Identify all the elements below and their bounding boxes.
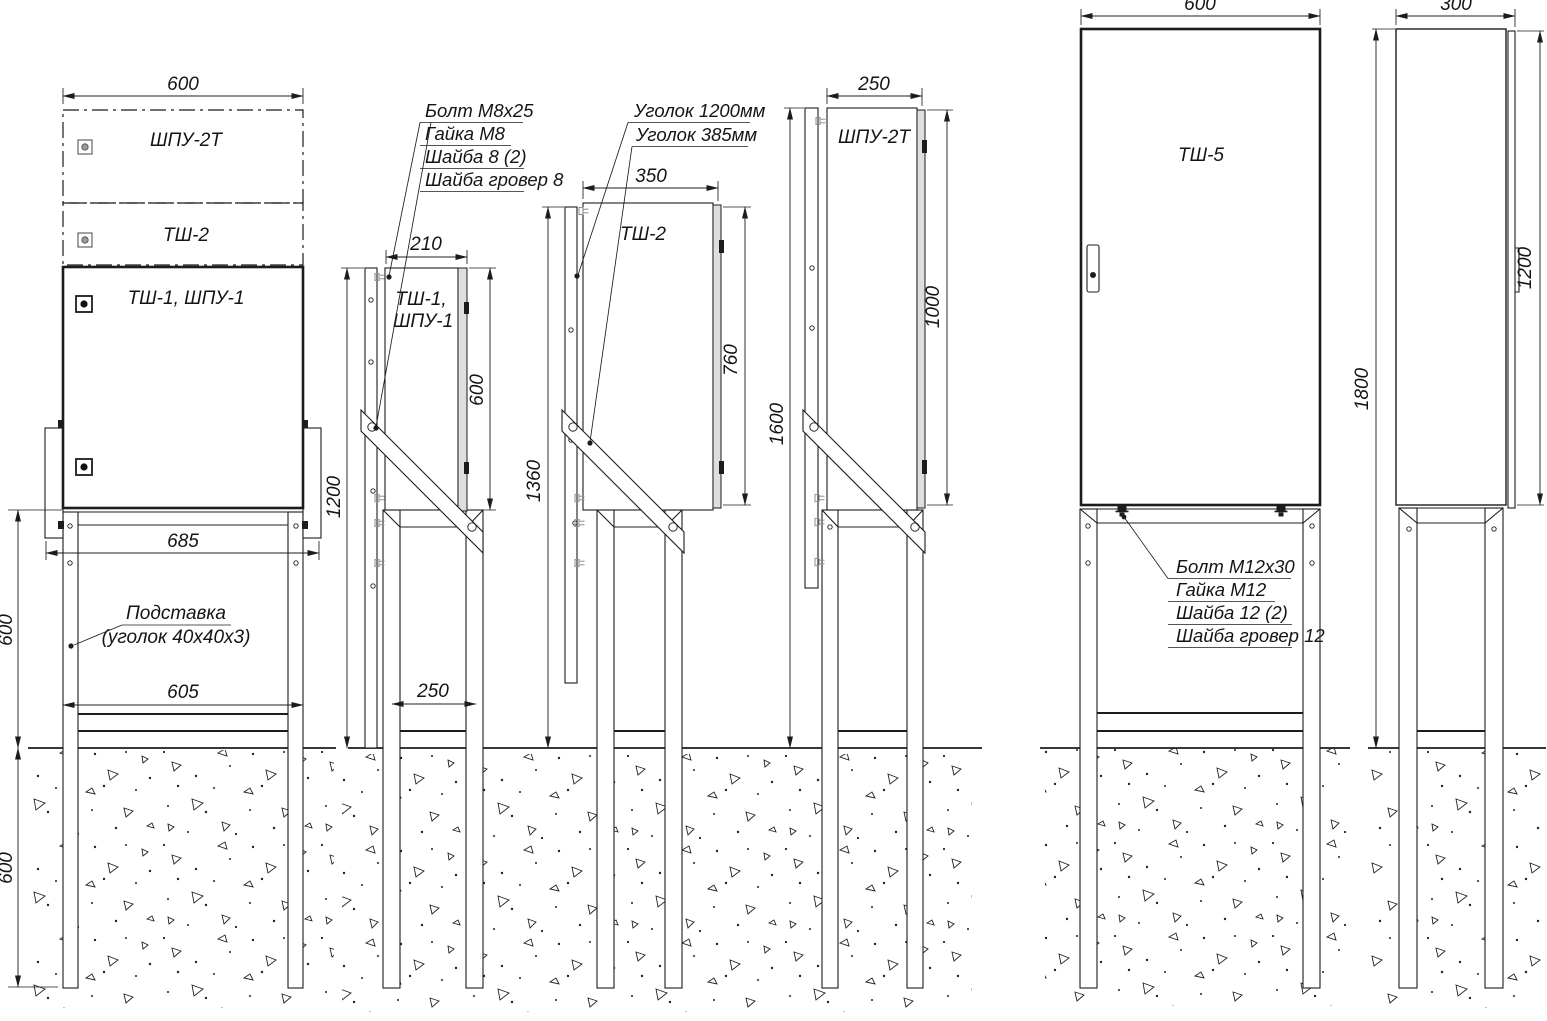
dim-bracket-685: 685: [46, 531, 319, 560]
svg-text:350: 350: [635, 166, 667, 187]
stand-leg: [665, 510, 682, 988]
stand-leg: [383, 510, 400, 988]
cabinet-label: ШПУ-2Т: [838, 127, 911, 148]
svg-text:Шайба гровер 8: Шайба гровер 8: [425, 169, 564, 190]
cabinet-tsh5: [1081, 29, 1320, 505]
dim-width-600: 600: [63, 74, 303, 104]
door-handle: [1087, 245, 1099, 292]
svg-text:250: 250: [857, 74, 890, 95]
dim-legs-250: 250: [392, 681, 476, 704]
cabinet-side: [1396, 29, 1506, 505]
svg-text:Шайба гровер 12: Шайба гровер 12: [1176, 625, 1325, 646]
stand-leg: [63, 512, 78, 988]
svg-text:1800: 1800: [1352, 367, 1373, 410]
svg-text:1000: 1000: [923, 285, 944, 328]
cabinet-shpu2t-outline: [63, 110, 303, 203]
dim-total-1600: 1600: [767, 108, 804, 748]
cabinet-label: ТШ-1, ШПУ-1: [128, 288, 245, 309]
cabinet-label: ШПУ-2Т: [150, 130, 223, 151]
svg-text:605: 605: [167, 682, 199, 703]
stand-leg: [1080, 509, 1097, 988]
lock-icon: [78, 140, 92, 154]
cabinet-label: ШПУ-1: [393, 311, 453, 332]
dim-cabinet-760: 760: [721, 207, 751, 505]
dim-depth-210: 210: [386, 234, 467, 264]
stand-leg: [597, 510, 614, 988]
svg-text:Уголок 1200мм: Уголок 1200мм: [633, 100, 766, 121]
svg-text:1200: 1200: [324, 475, 345, 518]
svg-text:600: 600: [467, 374, 488, 406]
svg-text:300: 300: [1440, 0, 1472, 15]
cabinet-label: ТШ-1,: [395, 289, 446, 310]
stand-leg: [907, 510, 923, 988]
svg-text:Уголок 385мм: Уголок 385мм: [635, 124, 757, 145]
svg-text:Гайка М12: Гайка М12: [1176, 579, 1267, 600]
dim-depth-250: 250: [827, 74, 922, 106]
dim-stand-600: 600: [0, 510, 62, 748]
angle-strip: [805, 108, 818, 588]
svg-text:Гайка М8: Гайка М8: [425, 123, 506, 144]
svg-text:600: 600: [1184, 0, 1216, 15]
svg-text:1600: 1600: [767, 402, 788, 445]
svg-text:210: 210: [409, 234, 442, 255]
dim-cabinet-1000: 1000: [923, 110, 953, 505]
dim-width-600: 600: [1081, 0, 1320, 25]
cabinet-label: ТШ-2: [163, 225, 209, 246]
bolt-icon: [1275, 505, 1288, 517]
svg-text:(уголок 40х40х3): (уголок 40х40х3): [102, 627, 251, 648]
svg-text:600: 600: [167, 74, 199, 95]
stand-leg: [1303, 509, 1320, 988]
callout-stand: Подставка (уголок 40х40х3): [68, 603, 250, 649]
lock-icon: [76, 296, 92, 312]
stand-leg: [466, 510, 483, 988]
svg-text:1360: 1360: [524, 459, 545, 502]
svg-text:1200: 1200: [1515, 246, 1536, 289]
callout-hardware-m12: Болт М12х30 Гайка М12 Шайба 12 (2) Шайба…: [1122, 515, 1326, 648]
bolt-icon: [1116, 505, 1129, 517]
svg-text:Болт М8х25: Болт М8х25: [425, 100, 534, 121]
angle-strip: [565, 207, 577, 683]
stand-leg: [288, 512, 303, 988]
dim-cabinet-1200: 1200: [1515, 31, 1544, 505]
svg-text:Шайба 12 (2): Шайба 12 (2): [1176, 602, 1288, 623]
stand-leg: [822, 510, 838, 988]
svg-text:250: 250: [416, 681, 449, 702]
dim-total-1200: 1200: [324, 268, 364, 748]
dim-depth-300: 300: [1396, 0, 1515, 27]
dim-total-1800: 1800: [1352, 29, 1395, 748]
svg-text:760: 760: [721, 344, 742, 376]
installation-drawing: ШПУ-2Т ТШ-2 ТШ-1, ШПУ-1 600 685 605 600: [0, 0, 1547, 1021]
cabinet-door-edge: [1508, 31, 1515, 508]
svg-text:685: 685: [167, 531, 199, 552]
angle-strip: [365, 268, 377, 748]
stand-leg: [1485, 508, 1503, 988]
svg-text:600: 600: [0, 614, 17, 646]
dim-depth-350: 350: [583, 166, 718, 201]
dim-total-1360: 1360: [524, 207, 564, 748]
lock-icon: [76, 459, 92, 475]
svg-text:600: 600: [0, 852, 17, 884]
svg-text:Болт М12х30: Болт М12х30: [1176, 556, 1295, 577]
dim-cabinet-600: 600: [467, 268, 496, 510]
lock-icon: [78, 233, 92, 247]
stand-leg: [1399, 508, 1417, 988]
svg-text:Подставка: Подставка: [126, 603, 226, 624]
dim-legs-605: 605: [63, 682, 303, 705]
cabinet-label: ТШ-2: [620, 224, 666, 245]
cabinet-label: ТШ-5: [1178, 145, 1224, 166]
svg-text:Шайба 8 (2): Шайба 8 (2): [425, 146, 526, 167]
